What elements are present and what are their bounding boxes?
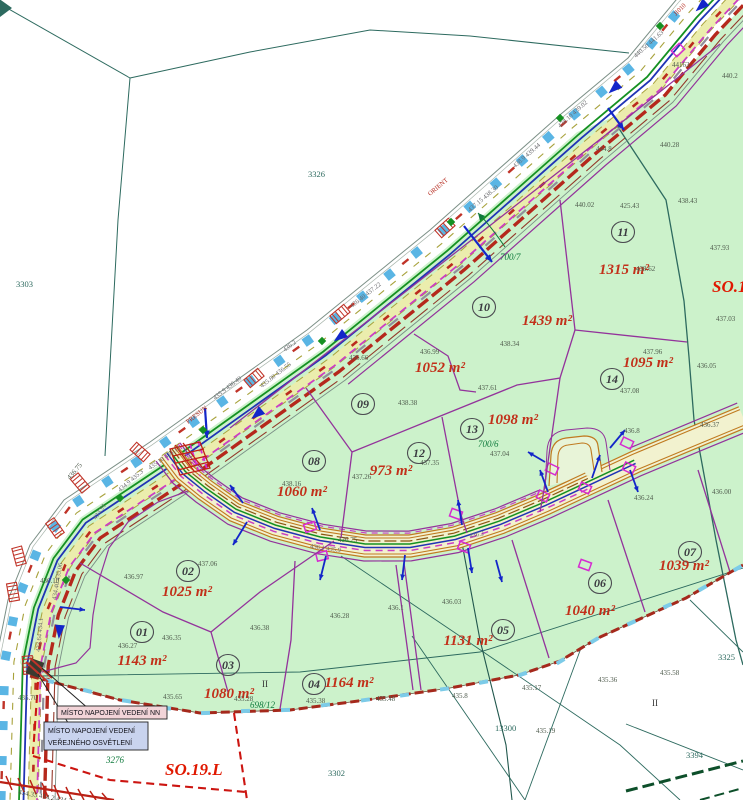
svg-text:1025 m²: 1025 m² bbox=[162, 584, 212, 600]
svg-text:437.96: 437.96 bbox=[643, 348, 663, 356]
svg-text:MÍSTO NAPOJENÍ VEDENÍ: MÍSTO NAPOJENÍ VEDENÍ bbox=[48, 726, 135, 735]
svg-text:437.93: 437.93 bbox=[710, 244, 730, 252]
svg-text:436.38: 436.38 bbox=[250, 624, 270, 632]
svg-text:436.28: 436.28 bbox=[330, 612, 350, 620]
svg-text:3303: 3303 bbox=[16, 279, 33, 289]
svg-text:435.28: 435.28 bbox=[234, 695, 254, 703]
svg-text:437.04: 437.04 bbox=[490, 450, 510, 458]
svg-text:437.61: 437.61 bbox=[478, 384, 498, 392]
svg-text:12: 12 bbox=[413, 446, 425, 460]
svg-text:436.10: 436.10 bbox=[40, 577, 60, 585]
svg-text:436.37: 436.37 bbox=[700, 421, 720, 429]
svg-text:1439 m²: 1439 m² bbox=[522, 313, 572, 329]
svg-text:3394: 3394 bbox=[686, 750, 704, 760]
svg-text:MÍSTO NAPOJENÍ VEDENÍ NN: MÍSTO NAPOJENÍ VEDENÍ NN bbox=[61, 708, 160, 717]
svg-text:3326: 3326 bbox=[308, 169, 325, 179]
svg-text:06: 06 bbox=[594, 576, 606, 590]
svg-text:1095 m²: 1095 m² bbox=[623, 355, 673, 371]
svg-text:SO.1: SO.1 bbox=[712, 277, 743, 296]
svg-text:04: 04 bbox=[308, 677, 320, 691]
svg-text:3276: 3276 bbox=[105, 755, 125, 765]
svg-text:700/7: 700/7 bbox=[500, 252, 521, 262]
svg-text:1039 m²: 1039 m² bbox=[659, 558, 709, 574]
svg-text:08: 08 bbox=[308, 454, 320, 468]
svg-text:02: 02 bbox=[182, 564, 194, 578]
svg-text:03: 03 bbox=[222, 658, 234, 672]
svg-text:14: 14 bbox=[606, 372, 618, 386]
svg-text:435.58: 435.58 bbox=[660, 669, 680, 677]
svg-text:VEŘEJNÉHO OSVĚTLENÍ: VEŘEJNÉHO OSVĚTLENÍ bbox=[48, 738, 132, 747]
svg-text:440.02: 440.02 bbox=[575, 201, 595, 209]
svg-text:437.35: 437.35 bbox=[420, 459, 440, 467]
svg-text:1052 m²: 1052 m² bbox=[415, 360, 465, 376]
svg-text:437.06: 437.06 bbox=[198, 560, 218, 568]
svg-text:1143 m²: 1143 m² bbox=[117, 653, 167, 669]
svg-text:436.35: 436.35 bbox=[162, 634, 182, 642]
svg-text:437.26: 437.26 bbox=[352, 473, 372, 481]
svg-text:438.62: 438.62 bbox=[636, 265, 656, 273]
svg-text:437.03: 437.03 bbox=[716, 315, 736, 323]
svg-text:436.00: 436.00 bbox=[712, 488, 732, 496]
svg-text:435.38: 435.38 bbox=[306, 697, 326, 705]
svg-text:435.19: 435.19 bbox=[536, 727, 556, 735]
svg-text:436.05: 436.05 bbox=[697, 362, 717, 370]
svg-text:440.2: 440.2 bbox=[722, 72, 738, 80]
svg-text:435.36: 435.36 bbox=[598, 676, 618, 684]
svg-text:438.16: 438.16 bbox=[282, 480, 302, 488]
svg-text:436.27: 436.27 bbox=[118, 642, 138, 650]
svg-text:II: II bbox=[652, 698, 658, 708]
svg-text:1164 m²: 1164 m² bbox=[324, 675, 374, 691]
svg-text:440.28: 440.28 bbox=[660, 141, 680, 149]
svg-text:1131 m²: 1131 m² bbox=[443, 633, 493, 649]
svg-text:444.8: 444.8 bbox=[596, 145, 612, 153]
svg-text:13: 13 bbox=[466, 422, 478, 436]
svg-text:SO.19.L: SO.19.L bbox=[165, 760, 223, 779]
svg-text:436.1: 436.1 bbox=[388, 604, 404, 612]
svg-text:437.08: 437.08 bbox=[620, 387, 640, 395]
svg-text:436.24: 436.24 bbox=[634, 494, 654, 502]
svg-text:01: 01 bbox=[136, 625, 148, 639]
svg-text:1098 m²: 1098 m² bbox=[488, 412, 538, 428]
svg-text:436.97: 436.97 bbox=[124, 573, 144, 581]
svg-text:438.43: 438.43 bbox=[678, 197, 698, 205]
svg-text:1040 m²: 1040 m² bbox=[565, 603, 615, 619]
svg-text:700/6: 700/6 bbox=[478, 439, 499, 449]
svg-text:435.17: 435.17 bbox=[522, 684, 542, 692]
svg-text:436.03: 436.03 bbox=[442, 598, 462, 606]
svg-text:973 m²: 973 m² bbox=[370, 463, 413, 479]
svg-text:436.8: 436.8 bbox=[624, 427, 640, 435]
svg-text:438.38: 438.38 bbox=[398, 399, 418, 407]
svg-text:698/12: 698/12 bbox=[250, 700, 276, 710]
svg-text:13300: 13300 bbox=[495, 723, 516, 733]
svg-text:11: 11 bbox=[617, 225, 628, 239]
svg-text:438.34: 438.34 bbox=[500, 340, 520, 348]
svg-text:435.70: 435.70 bbox=[18, 694, 38, 702]
svg-text:435.65: 435.65 bbox=[163, 693, 183, 701]
svg-text:435.8: 435.8 bbox=[452, 692, 468, 700]
svg-text:3302: 3302 bbox=[328, 768, 345, 778]
svg-text:44163: 44163 bbox=[672, 61, 690, 69]
svg-text:II: II bbox=[262, 679, 268, 689]
svg-text:09: 09 bbox=[357, 397, 369, 411]
svg-text:05: 05 bbox=[497, 623, 509, 637]
svg-text:425.43: 425.43 bbox=[620, 202, 640, 210]
svg-text:10: 10 bbox=[478, 300, 490, 314]
svg-text:436.75: 436.75 bbox=[338, 536, 358, 544]
svg-text:436.66: 436.66 bbox=[349, 354, 369, 362]
svg-text:07: 07 bbox=[684, 545, 697, 559]
svg-text:435.48: 435.48 bbox=[376, 695, 396, 703]
svg-text:436.99: 436.99 bbox=[420, 348, 440, 356]
svg-text:3325: 3325 bbox=[718, 652, 735, 662]
